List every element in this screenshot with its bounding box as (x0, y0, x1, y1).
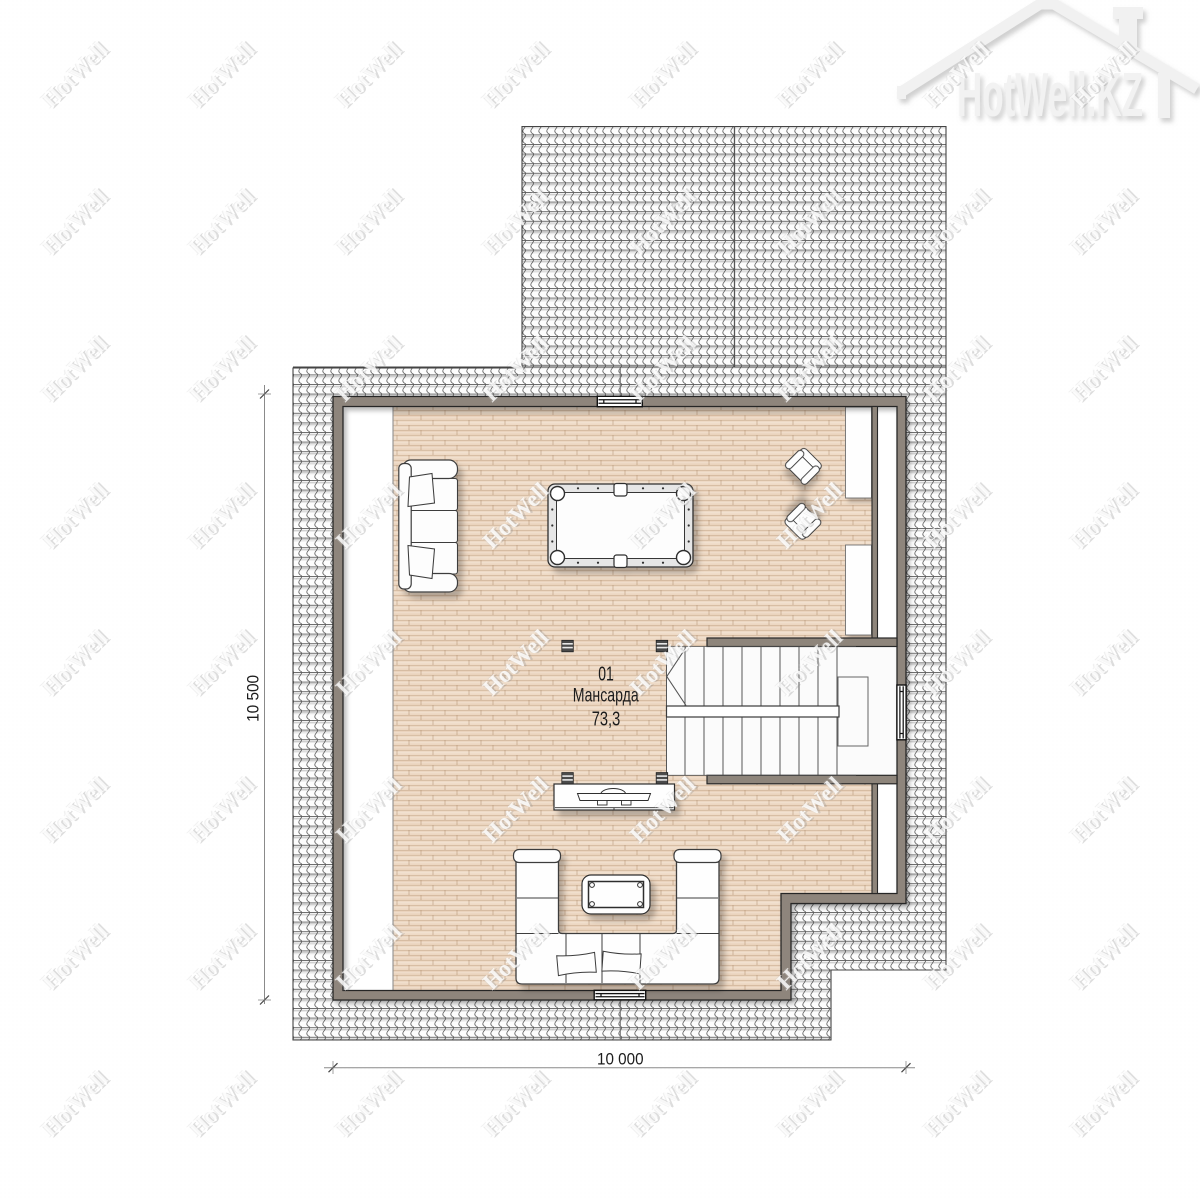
svg-text:10 500: 10 500 (245, 675, 263, 722)
svg-text:01: 01 (598, 664, 614, 686)
svg-text:73,3: 73,3 (592, 708, 621, 731)
svg-text:10 000: 10 000 (597, 1051, 644, 1069)
